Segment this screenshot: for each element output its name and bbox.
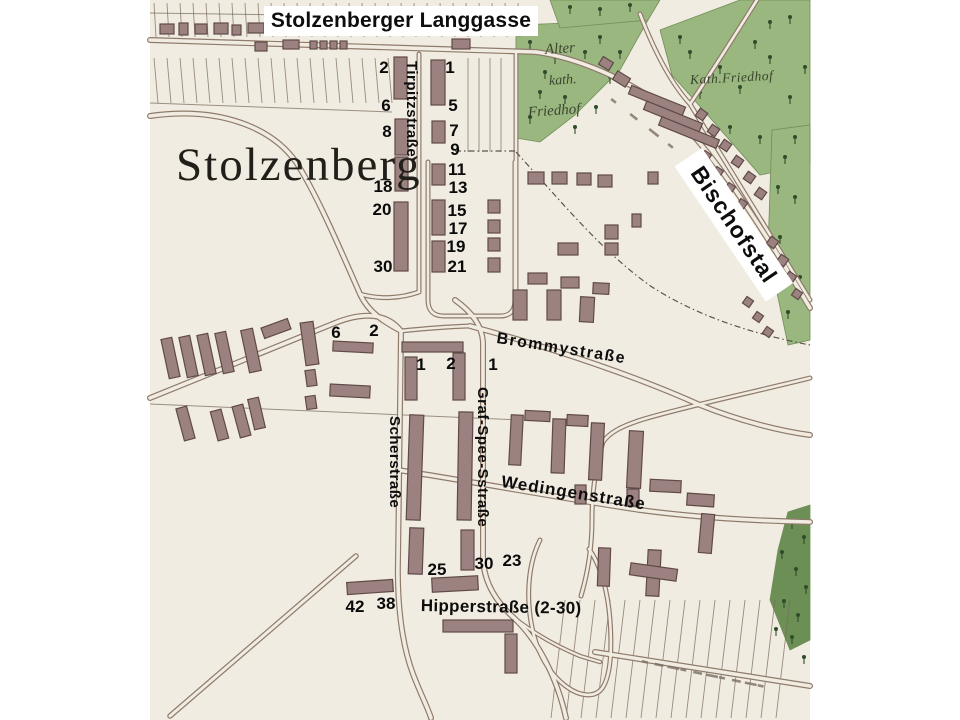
building — [432, 200, 445, 235]
tree-icon — [786, 310, 790, 314]
tree-icon — [768, 20, 772, 24]
tree-icon — [783, 155, 787, 159]
building — [408, 528, 424, 574]
tree-icon — [776, 185, 780, 189]
tree-icon — [780, 550, 784, 554]
building — [525, 410, 550, 421]
building — [687, 493, 715, 507]
tree-icon — [538, 90, 542, 94]
tree-icon — [803, 65, 807, 69]
building — [589, 423, 605, 481]
tree-icon — [568, 5, 572, 9]
tree-icon — [758, 135, 762, 139]
building — [547, 290, 561, 320]
building — [330, 41, 337, 49]
tree-icon — [594, 105, 598, 109]
tree-icon — [802, 535, 806, 539]
building — [528, 172, 544, 184]
building — [453, 353, 465, 400]
tree-icon — [573, 125, 577, 129]
building — [333, 341, 373, 353]
building — [561, 277, 579, 288]
building — [432, 164, 445, 185]
tree-icon — [753, 40, 757, 44]
tree-icon — [802, 655, 806, 659]
building — [567, 414, 589, 426]
building — [283, 23, 295, 33]
map-canvas — [0, 0, 960, 720]
building — [443, 620, 513, 632]
building — [575, 485, 586, 504]
building — [598, 175, 612, 187]
tree-icon — [793, 135, 797, 139]
tree-icon — [796, 613, 800, 617]
tree-icon — [583, 50, 587, 54]
building — [488, 258, 500, 272]
building — [597, 548, 610, 586]
building — [513, 290, 527, 320]
tree-icon — [778, 235, 782, 239]
tree-icon — [678, 35, 682, 39]
building — [577, 173, 591, 185]
building — [394, 202, 408, 271]
building — [394, 57, 407, 99]
tree-icon — [563, 95, 567, 99]
building — [358, 21, 370, 31]
tree-icon — [528, 115, 532, 119]
tree-icon — [793, 195, 797, 199]
tree-icon — [628, 3, 632, 7]
tree-icon — [794, 567, 798, 571]
building — [650, 479, 682, 493]
tree-icon — [788, 95, 792, 99]
building — [509, 415, 524, 466]
building — [283, 40, 299, 49]
building — [452, 39, 470, 49]
building — [605, 243, 618, 255]
building — [605, 225, 618, 239]
tree-icon — [718, 65, 722, 69]
building — [214, 23, 228, 34]
building — [648, 172, 658, 184]
building — [395, 119, 408, 155]
building — [330, 384, 371, 398]
building — [627, 431, 644, 489]
building — [593, 283, 610, 295]
building — [405, 357, 417, 400]
building — [232, 25, 241, 35]
tree-icon — [528, 40, 532, 44]
building — [305, 395, 317, 409]
building — [269, 24, 279, 34]
building — [632, 214, 641, 227]
tree-icon — [728, 125, 732, 129]
building — [461, 530, 474, 570]
building — [470, 21, 482, 31]
building — [551, 419, 566, 473]
building — [248, 23, 264, 33]
tree-icon — [543, 70, 547, 74]
tree-icon — [804, 585, 808, 589]
building — [320, 41, 327, 49]
building — [255, 42, 267, 51]
building — [406, 415, 424, 520]
building — [432, 576, 479, 592]
building — [505, 634, 517, 673]
tree-icon — [688, 50, 692, 54]
building — [457, 412, 473, 520]
building — [305, 369, 317, 386]
building — [627, 489, 639, 506]
tree-icon — [738, 85, 742, 89]
building — [698, 514, 714, 554]
building — [347, 579, 394, 594]
building — [402, 342, 463, 352]
building — [375, 23, 385, 33]
building — [160, 24, 174, 34]
building — [195, 24, 207, 34]
historic-map-view: Stolzenberger Langgasse Stolzenberg Tirp… — [0, 0, 960, 720]
building — [488, 238, 500, 251]
tree-icon — [598, 35, 602, 39]
tree-icon — [774, 627, 778, 631]
building — [310, 41, 317, 49]
building — [404, 20, 417, 31]
building — [179, 23, 188, 35]
building — [488, 220, 500, 233]
building — [300, 24, 310, 33]
building — [552, 172, 567, 184]
tree-icon — [782, 599, 786, 603]
building — [488, 200, 500, 213]
building — [432, 121, 445, 143]
building — [432, 241, 445, 272]
building — [528, 273, 547, 284]
tree-icon — [790, 635, 794, 639]
tree-icon — [768, 55, 772, 59]
tree-icon — [788, 15, 792, 19]
tree-icon — [618, 50, 622, 54]
building — [340, 41, 347, 49]
building — [395, 157, 408, 191]
building — [558, 243, 578, 255]
tree-icon — [598, 7, 602, 11]
building — [579, 297, 594, 323]
building — [431, 60, 445, 105]
